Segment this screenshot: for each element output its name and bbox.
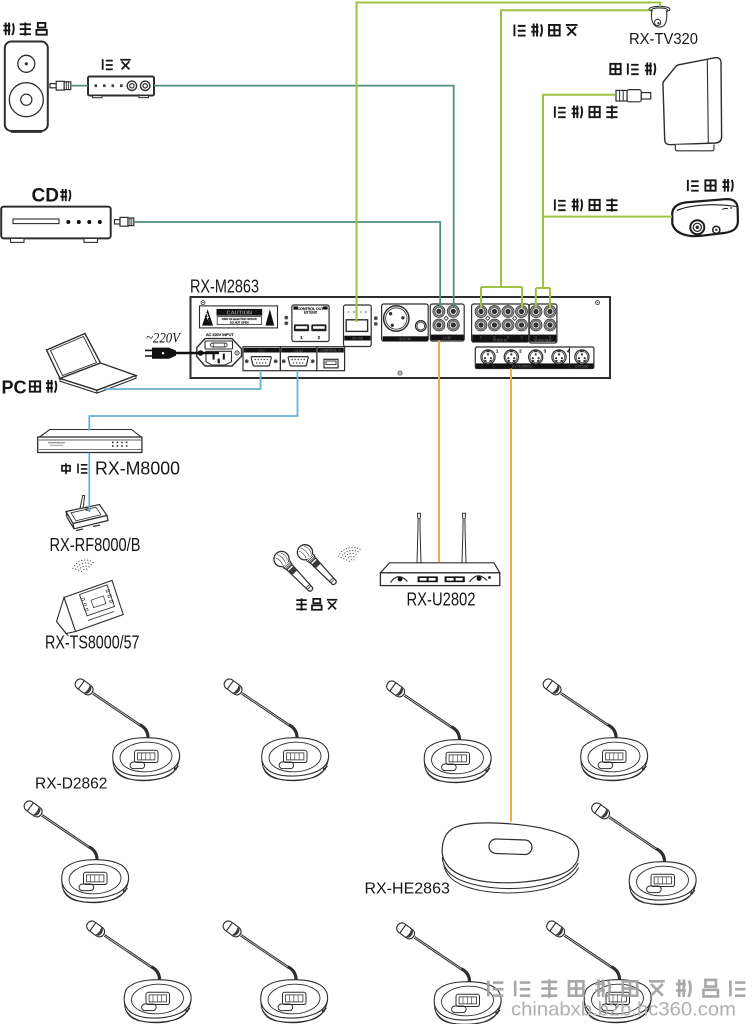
svg-text:RX-M8000: RX-M8000 [95,457,180,478]
svg-text:EXTEND: EXTEND [304,311,318,315]
svg-text:MIC IN: MIC IN [400,337,412,341]
svg-text:VIDEO OUT: VIDEO OUT [534,339,552,343]
svg-text:3: 3 [507,336,509,340]
svg-text:RX-D2862: RX-D2862 [35,776,107,793]
svg-text:RS-486: RS-486 [352,336,363,340]
svg-text:CCU: CCU [294,348,303,353]
svg-text:chinabxb.b2b.hc360.com: chinabxb.b2b.hc360.com [511,999,736,1021]
svg-text:~220V: ~220V [146,331,182,347]
svg-text:1: 1 [480,336,482,340]
svg-text:PC: PC [259,348,265,353]
svg-text:RX-M2863: RX-M2863 [190,277,259,297]
svg-text:EXTEND: EXTEND [575,364,589,368]
svg-text:CD: CD [32,186,59,207]
svg-text:RX-U2802: RX-U2802 [407,589,476,610]
svg-text:EXTENSION: EXTENSION [512,364,533,368]
svg-text:RX-RF8000/B: RX-RF8000/B [50,534,141,555]
svg-text:LINE: LINE [443,336,452,340]
svg-text:CONTROL IN: CONTROL IN [320,349,341,353]
svg-text:RX-TV320: RX-TV320 [629,31,698,48]
svg-text:VIDEO IN: VIDEO IN [493,339,508,343]
svg-text:4: 4 [521,336,523,340]
svg-text:AC 220V INPUT: AC 220V INPUT [206,333,234,337]
svg-text:RX-TS8000/57: RX-TS8000/57 [45,632,140,653]
svg-text:RX-HE2863: RX-HE2863 [365,881,450,898]
svg-text:CONTROL OUT: CONTROL OUT [297,307,324,311]
svg-text:CAUTION: CAUTION [227,310,252,316]
svg-text:PC: PC [2,378,27,398]
